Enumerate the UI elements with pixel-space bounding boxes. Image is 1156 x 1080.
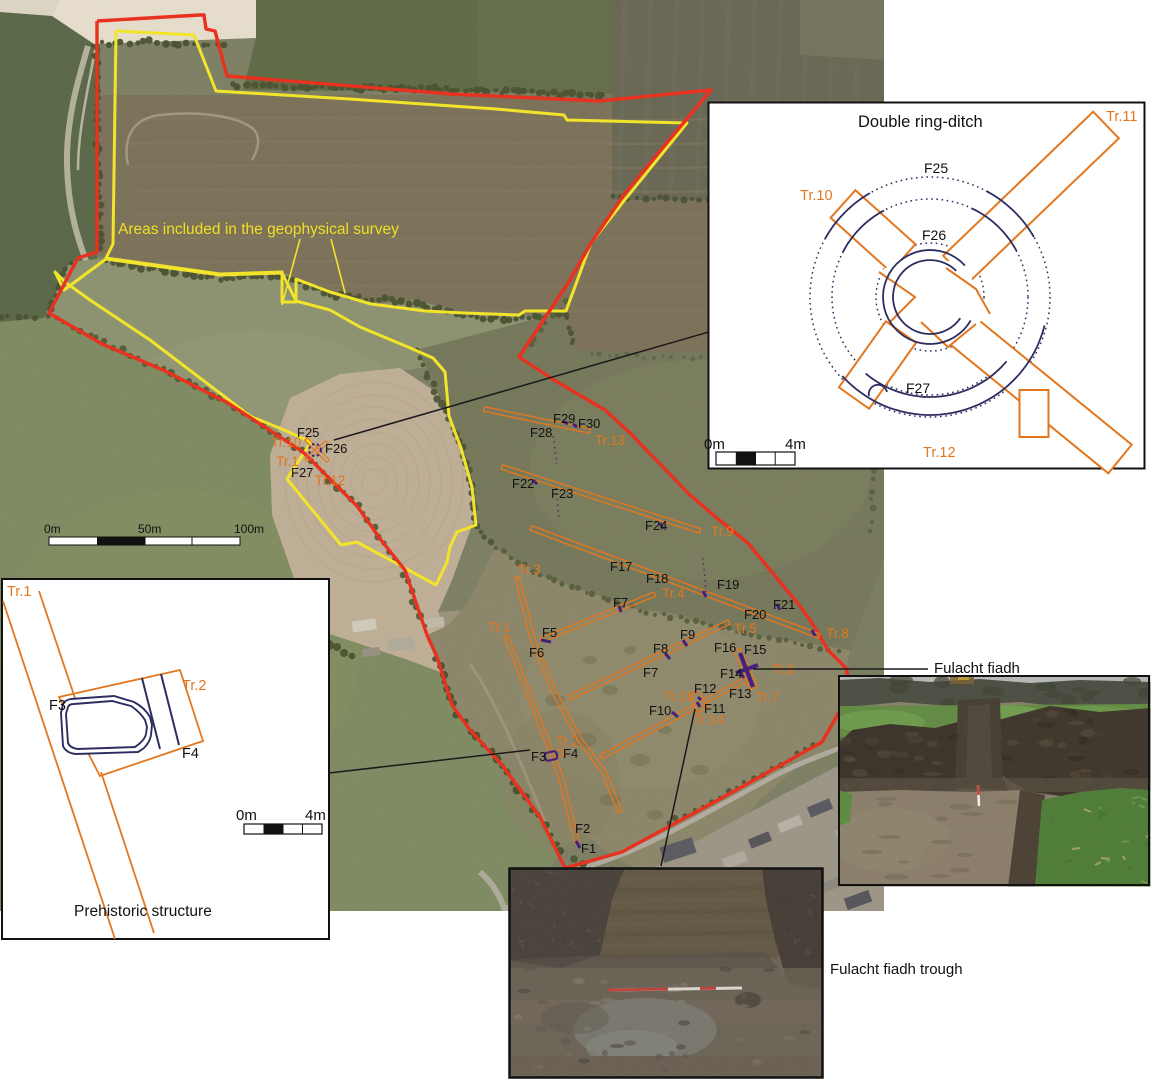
svg-text:Tr.13: Tr.13 xyxy=(595,433,625,448)
svg-text:Tr.12: Tr.12 xyxy=(923,445,956,461)
svg-text:F12: F12 xyxy=(694,681,716,696)
svg-text:F9: F9 xyxy=(680,627,695,642)
svg-text:Tr.14: Tr.14 xyxy=(694,712,725,727)
svg-text:F16: F16 xyxy=(714,640,736,655)
svg-text:Tr.1: Tr.1 xyxy=(276,454,299,469)
svg-text:Tr.10: Tr.10 xyxy=(800,188,833,204)
svg-text:Tr.7: Tr.7 xyxy=(756,690,779,705)
svg-text:Tr.10: Tr.10 xyxy=(271,435,301,450)
svg-text:F19: F19 xyxy=(717,577,739,592)
svg-text:F26: F26 xyxy=(922,227,946,243)
svg-text:Tr.12: Tr.12 xyxy=(315,473,345,488)
svg-text:Tr.15: Tr.15 xyxy=(664,689,694,704)
svg-text:0m: 0m xyxy=(236,807,257,824)
svg-text:F21: F21 xyxy=(773,597,795,612)
svg-text:Tr.5: Tr.5 xyxy=(734,621,757,636)
svg-text:F6: F6 xyxy=(529,645,544,660)
svg-text:Prehistoric structure: Prehistoric structure xyxy=(74,903,212,920)
svg-text:F22: F22 xyxy=(512,476,534,491)
svg-text:F5: F5 xyxy=(542,625,557,640)
svg-text:F23: F23 xyxy=(551,486,573,501)
svg-text:Tr.2: Tr.2 xyxy=(182,678,206,694)
svg-text:F3: F3 xyxy=(531,749,546,764)
svg-text:F18: F18 xyxy=(646,571,668,586)
svg-text:Tr.3: Tr.3 xyxy=(518,562,541,577)
svg-text:Tr.8: Tr.8 xyxy=(826,626,849,641)
svg-text:Tr.11: Tr.11 xyxy=(1106,109,1137,125)
svg-text:Tr.4: Tr.4 xyxy=(662,586,685,601)
svg-text:50m: 50m xyxy=(138,522,161,536)
svg-text:F28: F28 xyxy=(530,425,552,440)
svg-text:F10: F10 xyxy=(649,703,671,718)
svg-text:F26: F26 xyxy=(325,441,347,456)
svg-text:100m: 100m xyxy=(234,522,264,536)
svg-text:F13: F13 xyxy=(729,686,751,701)
svg-text:Tr.9: Tr.9 xyxy=(711,524,734,539)
svg-text:F20: F20 xyxy=(744,607,766,622)
svg-text:F2: F2 xyxy=(575,821,590,836)
svg-text:F30: F30 xyxy=(578,416,600,431)
svg-text:F29: F29 xyxy=(553,411,575,426)
svg-text:Double ring-ditch: Double ring-ditch xyxy=(858,113,983,131)
svg-text:Tr.1: Tr.1 xyxy=(488,620,511,635)
svg-text:F1: F1 xyxy=(581,841,596,856)
svg-text:Fulacht fiadh: Fulacht fiadh xyxy=(934,660,1020,677)
svg-text:0m: 0m xyxy=(44,522,61,536)
svg-text:Tr.1: Tr.1 xyxy=(7,584,31,600)
svg-text:F14: F14 xyxy=(720,666,742,681)
svg-text:F24: F24 xyxy=(645,518,667,533)
svg-text:F4: F4 xyxy=(182,746,199,762)
svg-text:F15: F15 xyxy=(744,642,766,657)
svg-text:F8: F8 xyxy=(653,641,668,656)
svg-text:Tr.2: Tr.2 xyxy=(556,734,579,749)
svg-text:F7: F7 xyxy=(643,665,658,680)
svg-text:0m: 0m xyxy=(704,436,725,453)
svg-text:F7: F7 xyxy=(613,595,628,610)
svg-text:Areas included in the geophysi: Areas included in the geophysical survey xyxy=(118,221,399,238)
svg-text:4m: 4m xyxy=(305,807,326,824)
svg-text:F3: F3 xyxy=(49,698,66,714)
svg-text:F25: F25 xyxy=(924,160,948,176)
svg-text:4m: 4m xyxy=(785,436,806,453)
svg-text:Fulacht fiadh trough: Fulacht fiadh trough xyxy=(830,961,963,978)
svg-text:F27: F27 xyxy=(906,380,930,396)
svg-text:F17: F17 xyxy=(610,559,632,574)
